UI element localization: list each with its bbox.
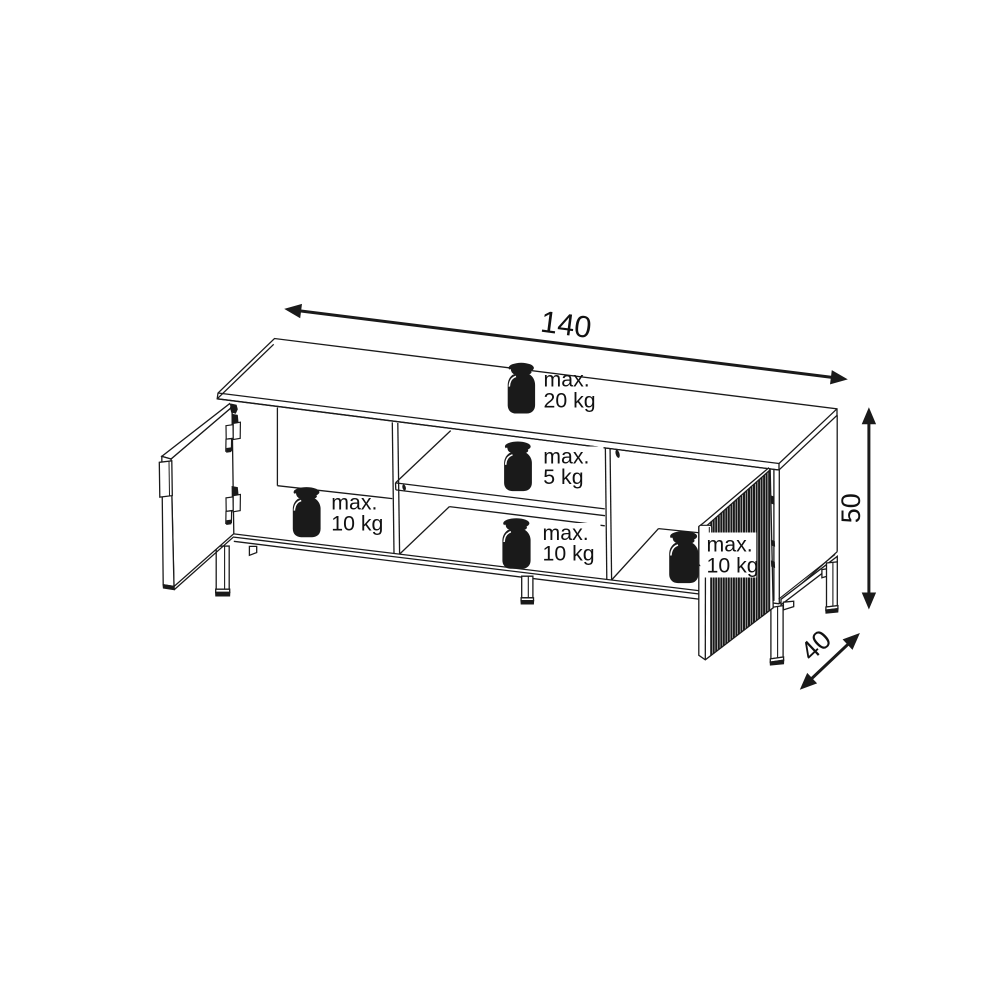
svg-text:10 kg: 10 kg xyxy=(543,542,595,566)
svg-text:5 kg: 5 kg xyxy=(543,465,583,489)
svg-text:10 kg: 10 kg xyxy=(707,553,759,577)
svg-text:140: 140 xyxy=(539,305,594,345)
svg-text:20 kg: 20 kg xyxy=(544,388,596,412)
svg-text:50: 50 xyxy=(836,493,866,523)
svg-text:10 kg: 10 kg xyxy=(331,511,383,535)
